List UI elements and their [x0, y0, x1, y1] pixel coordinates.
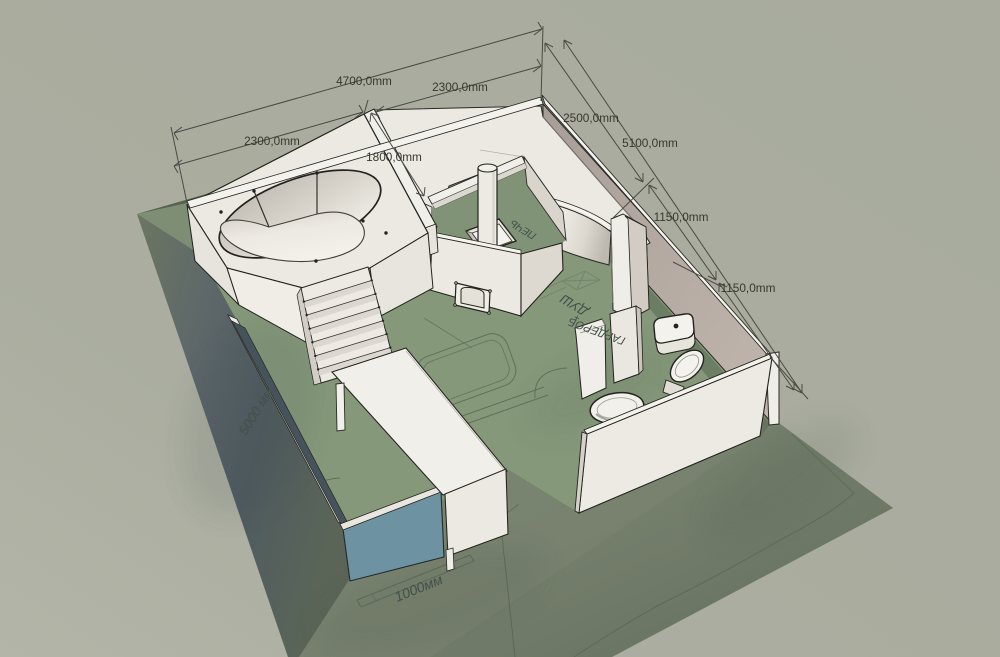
svg-text:1800,0mm: 1800,0mm: [366, 150, 422, 164]
svg-text:2500,0mm: 2500,0mm: [563, 111, 619, 125]
svg-text:1150,0mm: 1150,0mm: [654, 210, 709, 224]
svg-text:5100,0mm: 5100,0mm: [622, 136, 678, 150]
svg-text:2300,0mm: 2300,0mm: [244, 134, 300, 148]
svg-text:4700,0mm: 4700,0mm: [336, 74, 392, 88]
svg-text:1150,0mm: 1150,0mm: [721, 281, 776, 295]
svg-text:2300,0mm: 2300,0mm: [432, 80, 488, 94]
